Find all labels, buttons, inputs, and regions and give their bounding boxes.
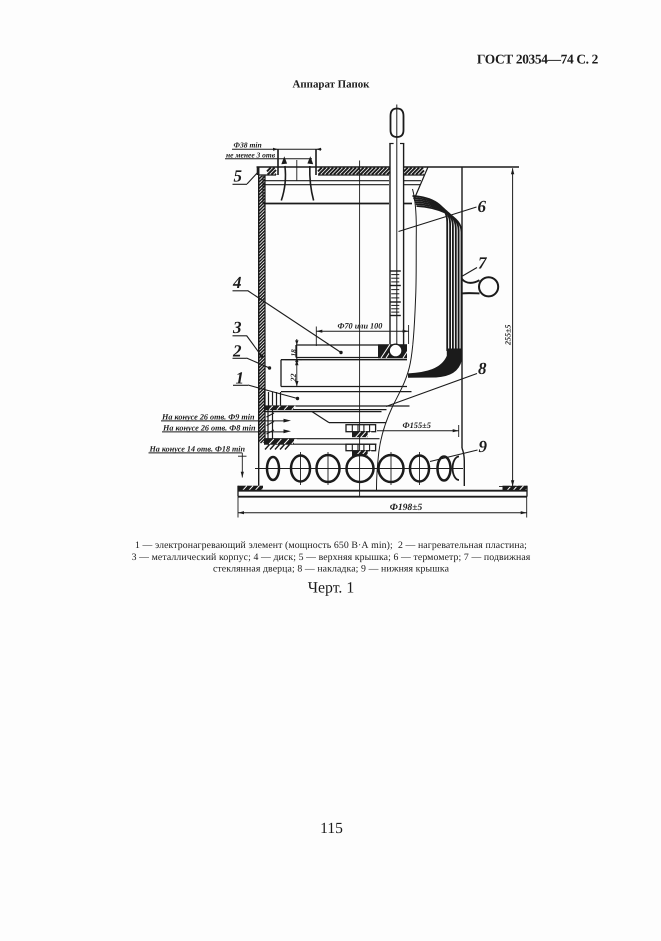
svg-text:22: 22 [289, 374, 298, 383]
svg-text:Ф198±5: Ф198±5 [390, 502, 423, 513]
svg-text:На конусе 26 отв. Ф9 min: На конусе 26 отв. Ф9 min [161, 412, 255, 421]
svg-text:8: 8 [478, 359, 487, 378]
svg-text:Ф70 или 100: Ф70 или 100 [338, 322, 383, 331]
svg-text:4: 4 [232, 273, 242, 292]
svg-text:ГОСТ 20354—74 С. 2: ГОСТ 20354—74 С. 2 [477, 52, 599, 67]
svg-text:1: 1 [236, 369, 245, 388]
svg-text:1 — электронагревающий элемент: 1 — электронагревающий элемент (мощность… [135, 540, 527, 551]
svg-text:18: 18 [289, 349, 298, 357]
svg-text:На конусе 14 отв. Ф18 min: На конусе 14 отв. Ф18 min [149, 444, 246, 453]
svg-text:2: 2 [232, 342, 242, 361]
svg-text:255±5: 255±5 [504, 325, 513, 346]
svg-text:Черт. 1: Черт. 1 [308, 580, 354, 597]
svg-text:3 — металлический корпус; 4 —: 3 — металлический корпус; 4 — диск; 5 — … [132, 552, 531, 563]
svg-text:115: 115 [320, 820, 343, 837]
svg-text:Аппарат Папок: Аппарат Папок [293, 79, 371, 91]
svg-text:3: 3 [232, 318, 242, 337]
svg-text:стеклянная дверца; 8 — накладк: стеклянная дверца; 8 — накладка; 9 — ниж… [213, 563, 450, 574]
svg-text:5: 5 [234, 167, 243, 186]
svg-text:не менее 3 отв: не менее 3 отв [226, 150, 276, 159]
svg-text:На конусе 26 отв. Ф8 min: На конусе 26 отв. Ф8 min [162, 423, 256, 432]
svg-text:Ф155±5: Ф155±5 [403, 421, 431, 430]
svg-text:9: 9 [479, 437, 488, 456]
svg-text:6: 6 [478, 197, 487, 216]
svg-text:Ф38 min: Ф38 min [234, 140, 262, 149]
